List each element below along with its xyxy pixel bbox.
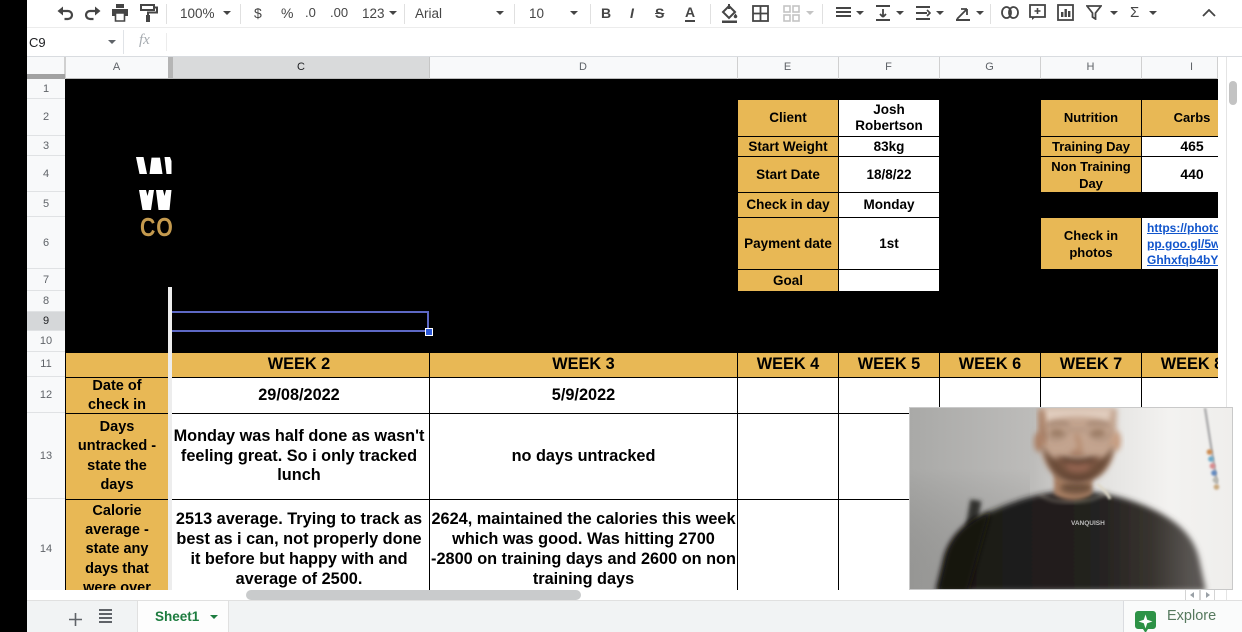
svg-text:CO: CO bbox=[140, 213, 174, 242]
svg-text:VANQUISH: VANQUISH bbox=[1071, 520, 1105, 527]
